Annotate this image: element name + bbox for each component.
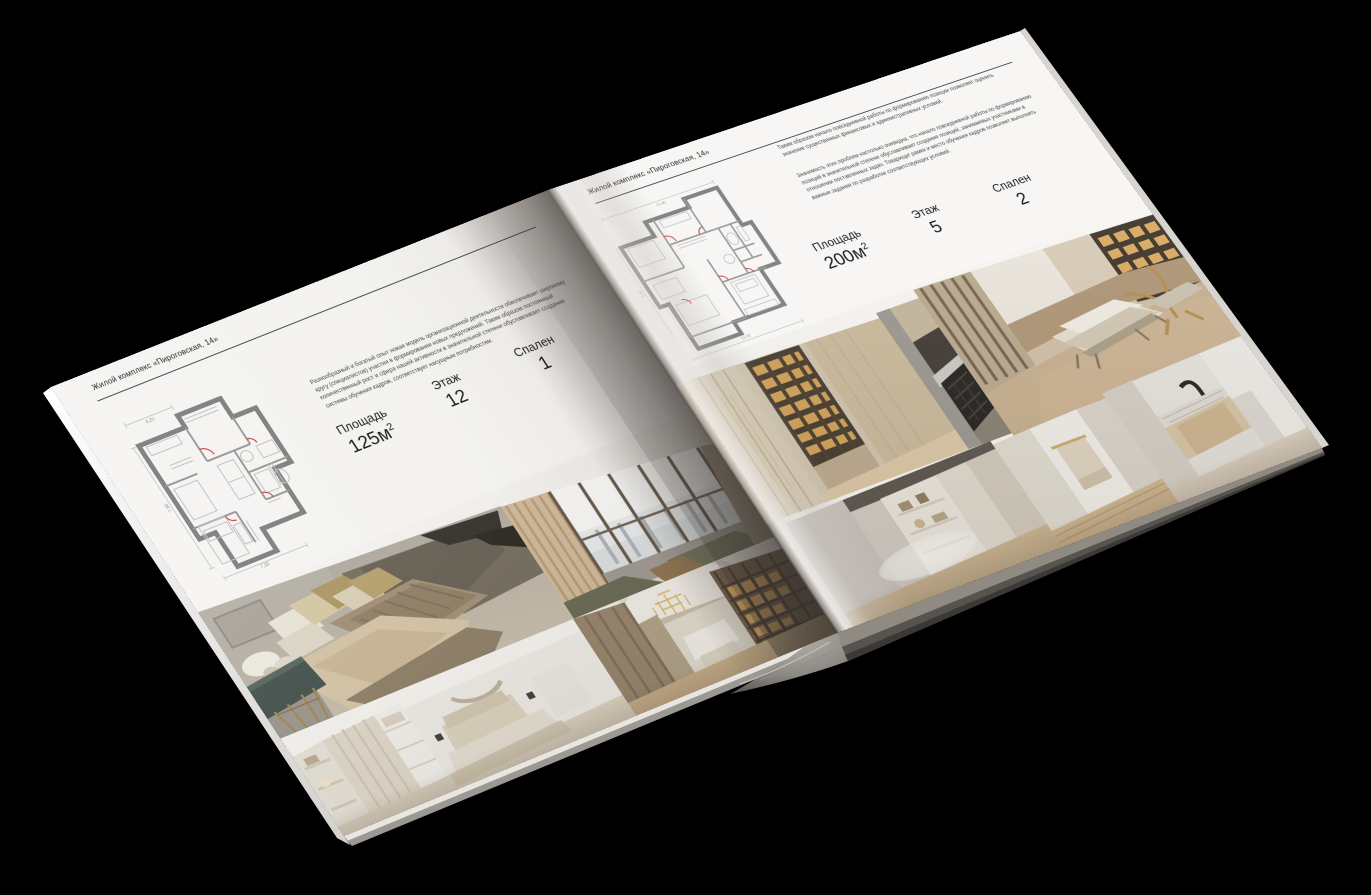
- svg-text:4,20: 4,20: [144, 417, 156, 426]
- svg-text:7,35: 7,35: [259, 562, 271, 571]
- svg-text:7,90: 7,90: [163, 502, 174, 513]
- svg-text:12,45: 12,45: [655, 199, 668, 207]
